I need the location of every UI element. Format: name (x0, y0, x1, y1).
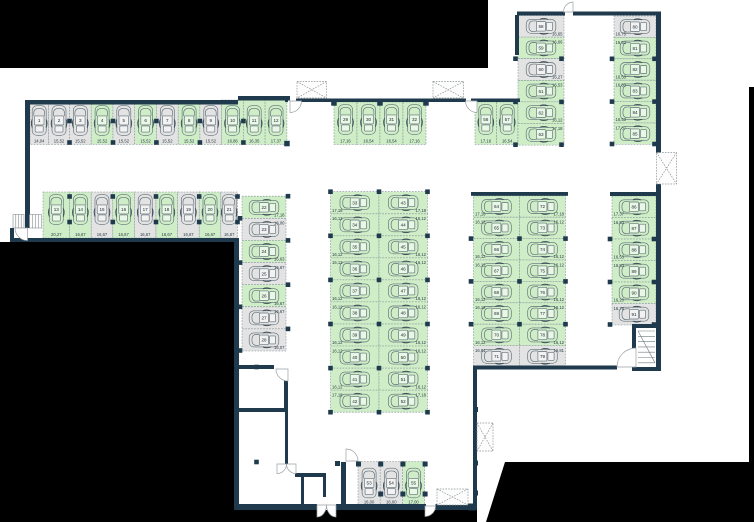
svg-text:15,52: 15,52 (162, 138, 173, 143)
svg-text:16,20: 16,20 (614, 298, 625, 303)
svg-text:42: 42 (352, 399, 358, 404)
svg-text:55: 55 (411, 481, 417, 486)
svg-text:46: 46 (401, 267, 407, 272)
svg-text:16,12: 16,12 (554, 297, 565, 302)
svg-text:15,52: 15,52 (119, 138, 130, 143)
svg-text:15: 15 (99, 207, 105, 212)
svg-text:17,18: 17,18 (274, 213, 285, 218)
svg-text:88: 88 (631, 247, 637, 252)
svg-text:36: 36 (352, 267, 358, 272)
svg-text:16,12: 16,12 (332, 304, 343, 309)
svg-text:16,12: 16,12 (554, 340, 565, 345)
svg-text:17,18: 17,18 (332, 393, 343, 398)
svg-text:16,12: 16,12 (332, 296, 343, 301)
svg-text:51: 51 (401, 377, 407, 382)
svg-text:16,12: 16,12 (416, 252, 427, 257)
svg-text:16,81: 16,81 (475, 348, 486, 353)
svg-text:78: 78 (540, 333, 546, 338)
svg-text:84: 84 (632, 110, 638, 115)
svg-text:91: 91 (631, 312, 637, 317)
svg-text:68: 68 (494, 290, 500, 295)
svg-text:16,67: 16,67 (205, 232, 216, 237)
svg-text:87: 87 (631, 226, 637, 231)
svg-text:16,87: 16,87 (224, 232, 235, 237)
svg-text:16,12: 16,12 (332, 348, 343, 353)
svg-text:12: 12 (273, 118, 279, 123)
svg-text:17,18: 17,18 (552, 126, 563, 131)
svg-text:13: 13 (54, 207, 60, 212)
svg-text:16,12: 16,12 (332, 384, 343, 389)
svg-text:16,12: 16,12 (416, 260, 427, 265)
svg-text:64: 64 (494, 204, 500, 209)
svg-text:26: 26 (261, 293, 267, 298)
svg-text:43: 43 (401, 200, 407, 205)
svg-text:21: 21 (227, 207, 233, 212)
svg-text:53: 53 (367, 481, 373, 486)
svg-text:16,12: 16,12 (332, 340, 343, 345)
svg-text:16,12: 16,12 (554, 220, 565, 225)
svg-text:17: 17 (143, 207, 149, 212)
svg-text:69: 69 (494, 311, 500, 316)
svg-text:90: 90 (631, 290, 637, 295)
svg-text:23: 23 (261, 227, 267, 232)
svg-text:16,12: 16,12 (475, 297, 486, 302)
svg-text:62: 62 (538, 110, 544, 115)
svg-text:16,75: 16,75 (616, 32, 627, 37)
svg-text:82: 82 (632, 67, 638, 72)
svg-text:16,12: 16,12 (554, 262, 565, 267)
svg-text:17,16: 17,16 (475, 211, 486, 216)
svg-text:4: 4 (101, 118, 104, 123)
svg-text:59: 59 (538, 46, 544, 51)
svg-text:3: 3 (79, 118, 82, 123)
svg-text:65: 65 (494, 226, 500, 231)
svg-text:15,52: 15,52 (75, 138, 86, 143)
svg-text:22: 22 (261, 205, 267, 210)
svg-text:72: 72 (540, 204, 546, 209)
svg-text:71: 71 (494, 354, 500, 359)
svg-text:16,54: 16,54 (502, 138, 513, 143)
svg-text:29: 29 (343, 117, 349, 122)
svg-text:89: 89 (631, 269, 637, 274)
svg-text:47: 47 (401, 289, 407, 294)
svg-text:57: 57 (505, 117, 511, 122)
svg-text:15,52: 15,52 (184, 138, 195, 143)
svg-text:16,67: 16,67 (274, 309, 285, 314)
svg-text:1: 1 (38, 118, 41, 123)
svg-text:83: 83 (632, 89, 638, 94)
svg-text:16,12: 16,12 (552, 118, 563, 123)
svg-text:17,37: 17,37 (616, 125, 627, 130)
svg-text:16,12: 16,12 (416, 216, 427, 221)
svg-text:17,16: 17,16 (340, 138, 351, 143)
svg-text:16,53: 16,53 (616, 117, 627, 122)
svg-text:16,54: 16,54 (386, 138, 397, 143)
svg-text:16,12: 16,12 (332, 260, 343, 265)
svg-text:54: 54 (389, 481, 395, 486)
svg-text:17,16: 17,16 (409, 138, 420, 143)
svg-text:79: 79 (540, 354, 546, 359)
svg-text:45: 45 (401, 245, 407, 250)
svg-text:70: 70 (494, 333, 500, 338)
svg-text:77: 77 (540, 311, 546, 316)
svg-text:16,78: 16,78 (614, 306, 625, 311)
svg-text:16,12: 16,12 (332, 252, 343, 257)
svg-text:73: 73 (540, 226, 546, 231)
svg-text:16,81: 16,81 (554, 348, 565, 353)
svg-text:50: 50 (401, 355, 407, 360)
svg-text:16,07: 16,07 (274, 345, 285, 350)
svg-text:7: 7 (166, 118, 169, 123)
svg-text:16,27: 16,27 (552, 75, 563, 80)
svg-text:16,12: 16,12 (416, 296, 427, 301)
svg-text:16: 16 (121, 207, 127, 212)
svg-text:44: 44 (401, 223, 407, 228)
svg-text:16,53: 16,53 (614, 220, 625, 225)
svg-text:17,18: 17,18 (416, 393, 427, 398)
svg-text:16,12: 16,12 (416, 348, 427, 353)
svg-text:38: 38 (352, 311, 358, 316)
svg-text:16,12: 16,12 (554, 254, 565, 259)
svg-text:32: 32 (412, 117, 418, 122)
svg-text:18: 18 (164, 207, 170, 212)
svg-text:75: 75 (540, 268, 546, 273)
svg-text:16,53: 16,53 (616, 83, 627, 88)
svg-text:35: 35 (352, 245, 358, 250)
svg-text:16,65: 16,65 (552, 31, 563, 36)
svg-text:9: 9 (210, 118, 213, 123)
svg-text:31: 31 (389, 117, 395, 122)
svg-text:16,53: 16,53 (616, 74, 627, 79)
svg-text:30: 30 (366, 117, 372, 122)
svg-text:27: 27 (261, 316, 267, 321)
svg-text:17,00: 17,00 (408, 499, 419, 504)
svg-text:16,12: 16,12 (475, 340, 486, 345)
svg-text:67: 67 (494, 268, 500, 273)
svg-text:19: 19 (186, 207, 192, 212)
svg-text:16,53: 16,53 (552, 83, 563, 88)
svg-text:17,18: 17,18 (332, 208, 343, 213)
svg-text:25: 25 (261, 271, 267, 276)
svg-text:34: 34 (352, 223, 358, 228)
svg-text:20: 20 (207, 207, 213, 212)
svg-text:58: 58 (538, 24, 544, 29)
svg-text:11: 11 (252, 118, 257, 123)
svg-text:66: 66 (494, 247, 500, 252)
svg-text:63: 63 (538, 132, 544, 137)
svg-text:17,37: 17,37 (271, 138, 282, 143)
svg-text:39: 39 (352, 333, 358, 338)
svg-text:61: 61 (538, 89, 544, 94)
svg-text:49: 49 (401, 333, 407, 338)
svg-text:8: 8 (188, 118, 191, 123)
svg-text:15,52: 15,52 (140, 138, 151, 143)
svg-text:16,00: 16,00 (386, 499, 397, 504)
svg-text:16,12: 16,12 (416, 384, 427, 389)
svg-text:16,12: 16,12 (416, 340, 427, 345)
svg-text:40: 40 (352, 355, 358, 360)
svg-text:37: 37 (352, 289, 358, 294)
svg-text:10: 10 (230, 118, 236, 123)
svg-text:16,53: 16,53 (616, 40, 627, 45)
svg-text:16,53: 16,53 (614, 263, 625, 268)
svg-text:6: 6 (144, 118, 147, 123)
svg-text:14,04: 14,04 (34, 138, 45, 143)
svg-text:52: 52 (401, 399, 407, 404)
svg-text:17,18: 17,18 (554, 211, 565, 216)
svg-text:16,66: 16,66 (552, 40, 563, 45)
svg-text:80: 80 (632, 24, 638, 29)
svg-text:15,52: 15,52 (206, 138, 217, 143)
svg-text:74: 74 (540, 247, 546, 252)
svg-text:16,67: 16,67 (162, 232, 173, 237)
svg-text:33: 33 (352, 200, 358, 205)
svg-text:16,54: 16,54 (363, 138, 374, 143)
svg-text:85: 85 (632, 131, 638, 136)
svg-text:16,67: 16,67 (75, 232, 86, 237)
svg-text:60: 60 (538, 67, 544, 72)
svg-text:16,53: 16,53 (614, 255, 625, 260)
svg-text:16,67: 16,67 (274, 301, 285, 306)
svg-text:41: 41 (352, 377, 358, 382)
svg-text:16,86: 16,86 (227, 138, 238, 143)
svg-text:15,52: 15,52 (54, 138, 65, 143)
svg-text:28: 28 (261, 338, 267, 343)
svg-text:16,67: 16,67 (97, 232, 108, 237)
svg-text:16,67: 16,67 (274, 265, 285, 270)
svg-text:81: 81 (632, 46, 638, 51)
svg-text:16,67: 16,67 (118, 232, 129, 237)
svg-text:2: 2 (58, 118, 61, 123)
svg-text:17,37: 17,37 (614, 212, 625, 217)
svg-text:16,12: 16,12 (416, 304, 427, 309)
svg-text:15,52: 15,52 (97, 138, 108, 143)
svg-text:16,35: 16,35 (249, 138, 260, 143)
svg-text:20,27: 20,27 (51, 232, 62, 237)
svg-text:14: 14 (78, 207, 84, 212)
svg-text:16,12: 16,12 (475, 262, 486, 267)
svg-text:17,18: 17,18 (416, 208, 427, 213)
svg-text:16,12: 16,12 (475, 254, 486, 259)
svg-text:16,63: 16,63 (274, 257, 285, 262)
svg-text:17,16: 17,16 (481, 138, 492, 143)
svg-text:76: 76 (540, 290, 546, 295)
svg-text:16,00: 16,00 (364, 499, 375, 504)
svg-text:16,00: 16,00 (274, 221, 285, 226)
svg-text:56: 56 (483, 117, 489, 122)
svg-text:16,67: 16,67 (140, 232, 151, 237)
svg-text:16,12: 16,12 (475, 305, 486, 310)
svg-text:5: 5 (123, 118, 126, 123)
svg-text:16,12: 16,12 (554, 305, 565, 310)
svg-text:16,12: 16,12 (332, 216, 343, 221)
svg-text:48: 48 (401, 311, 407, 316)
svg-text:16,67: 16,67 (183, 232, 194, 237)
svg-text:24: 24 (261, 249, 267, 254)
svg-text:86: 86 (631, 204, 637, 209)
svg-text:16,12: 16,12 (475, 220, 486, 225)
